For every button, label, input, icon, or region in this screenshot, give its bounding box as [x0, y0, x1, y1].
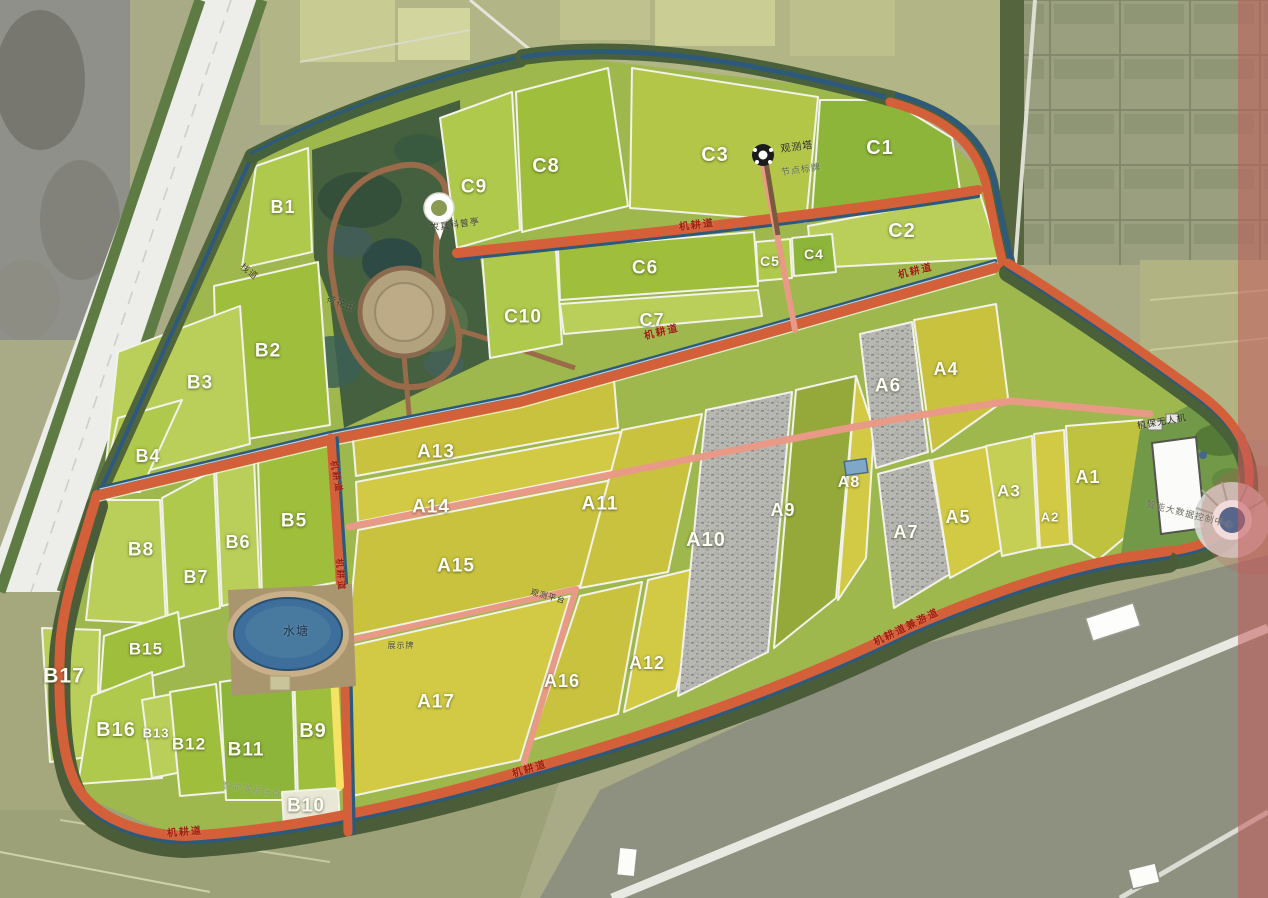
plot-b12	[170, 684, 226, 796]
plot-b7	[162, 470, 220, 622]
plot-b5	[258, 442, 338, 596]
pond	[228, 584, 356, 696]
plot-a2	[1034, 430, 1070, 548]
plot-b6	[216, 460, 260, 606]
plot-c8	[516, 68, 628, 232]
field-hut	[270, 676, 290, 690]
water-tank	[844, 459, 868, 476]
plot-c4	[792, 234, 836, 276]
plot-c10	[482, 250, 562, 358]
site-plan-canvas	[0, 0, 1268, 898]
site-plan-map: C1C2C3C4C5C6C7C8C9C10B1B2B3B4B5B6B7B8B9B…	[0, 0, 1268, 898]
